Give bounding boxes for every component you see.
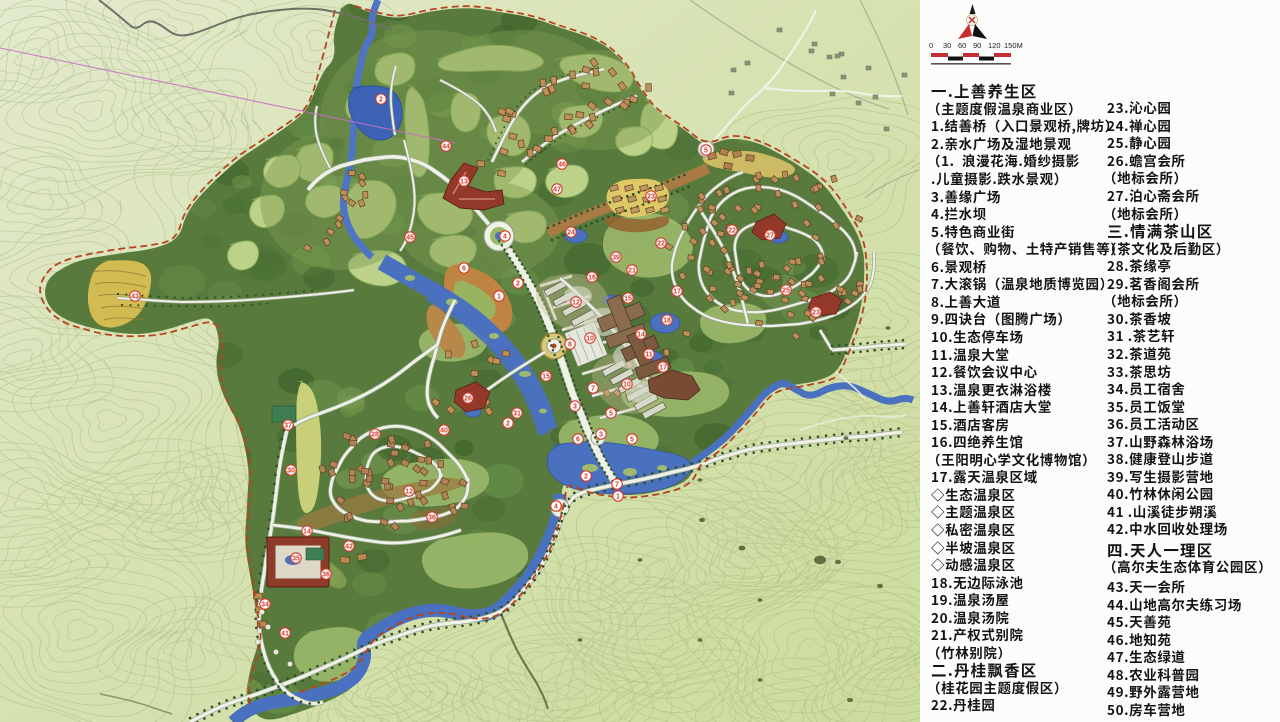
svg-text:34: 34: [261, 602, 269, 609]
svg-text:18: 18: [663, 318, 671, 325]
svg-text:30: 30: [287, 468, 295, 475]
svg-text:15: 15: [624, 296, 632, 303]
svg-text:4: 4: [503, 234, 507, 241]
svg-text:22: 22: [657, 241, 665, 248]
svg-text:6: 6: [462, 266, 466, 273]
svg-text:45: 45: [406, 235, 414, 242]
svg-text:60: 60: [958, 41, 966, 50]
svg-text:23: 23: [812, 310, 820, 317]
svg-text:42: 42: [345, 544, 353, 551]
svg-text:10: 10: [586, 336, 594, 343]
svg-text:17: 17: [659, 365, 667, 372]
svg-text:1: 1: [497, 294, 501, 301]
svg-text:5: 5: [609, 411, 613, 418]
svg-text:2: 2: [584, 474, 588, 481]
svg-text:7: 7: [591, 386, 595, 393]
svg-text:47: 47: [553, 187, 561, 194]
svg-text:2: 2: [516, 281, 520, 288]
svg-text:17: 17: [673, 289, 681, 296]
svg-text:10: 10: [623, 382, 631, 389]
svg-text:150M: 150M: [1004, 41, 1023, 50]
svg-text:25: 25: [782, 288, 790, 295]
svg-text:39: 39: [612, 255, 620, 262]
svg-text:15: 15: [542, 374, 550, 381]
svg-text:120: 120: [988, 41, 1001, 50]
svg-text:3: 3: [573, 404, 577, 411]
svg-text:30: 30: [943, 41, 951, 50]
svg-text:2: 2: [506, 421, 510, 428]
svg-text:14: 14: [303, 529, 311, 536]
svg-text:24: 24: [567, 230, 575, 237]
svg-text:8: 8: [568, 342, 572, 349]
svg-text:0: 0: [929, 41, 933, 50]
svg-text:7: 7: [615, 482, 619, 489]
svg-text:28: 28: [371, 432, 379, 439]
svg-text:44: 44: [442, 144, 450, 151]
svg-text:11: 11: [645, 352, 653, 359]
svg-text:41: 41: [281, 631, 289, 638]
svg-text:13: 13: [460, 179, 468, 186]
svg-text:5: 5: [704, 148, 708, 155]
svg-text:1: 1: [616, 494, 620, 501]
svg-text:3: 3: [599, 432, 603, 439]
svg-text:6: 6: [576, 437, 580, 444]
svg-text:37: 37: [284, 423, 292, 430]
svg-text:27: 27: [766, 233, 774, 240]
svg-text:22: 22: [728, 228, 736, 235]
svg-text:2: 2: [379, 97, 383, 104]
svg-text:46: 46: [558, 162, 566, 169]
svg-text:35: 35: [292, 556, 300, 563]
svg-text:36: 36: [428, 515, 436, 522]
svg-text:14: 14: [637, 332, 645, 339]
svg-text:43: 43: [131, 294, 139, 301]
svg-text:4: 4: [554, 504, 558, 511]
svg-text:5: 5: [630, 437, 634, 444]
svg-text:16: 16: [588, 275, 596, 282]
svg-text:12: 12: [572, 300, 580, 307]
svg-text:26: 26: [464, 396, 472, 403]
svg-text:23: 23: [647, 194, 655, 201]
svg-text:12: 12: [405, 489, 413, 496]
svg-text:31: 31: [513, 411, 521, 418]
svg-text:90: 90: [973, 41, 981, 50]
svg-text:36: 36: [322, 572, 330, 579]
svg-text:40: 40: [440, 428, 448, 435]
svg-text:21: 21: [628, 268, 636, 275]
